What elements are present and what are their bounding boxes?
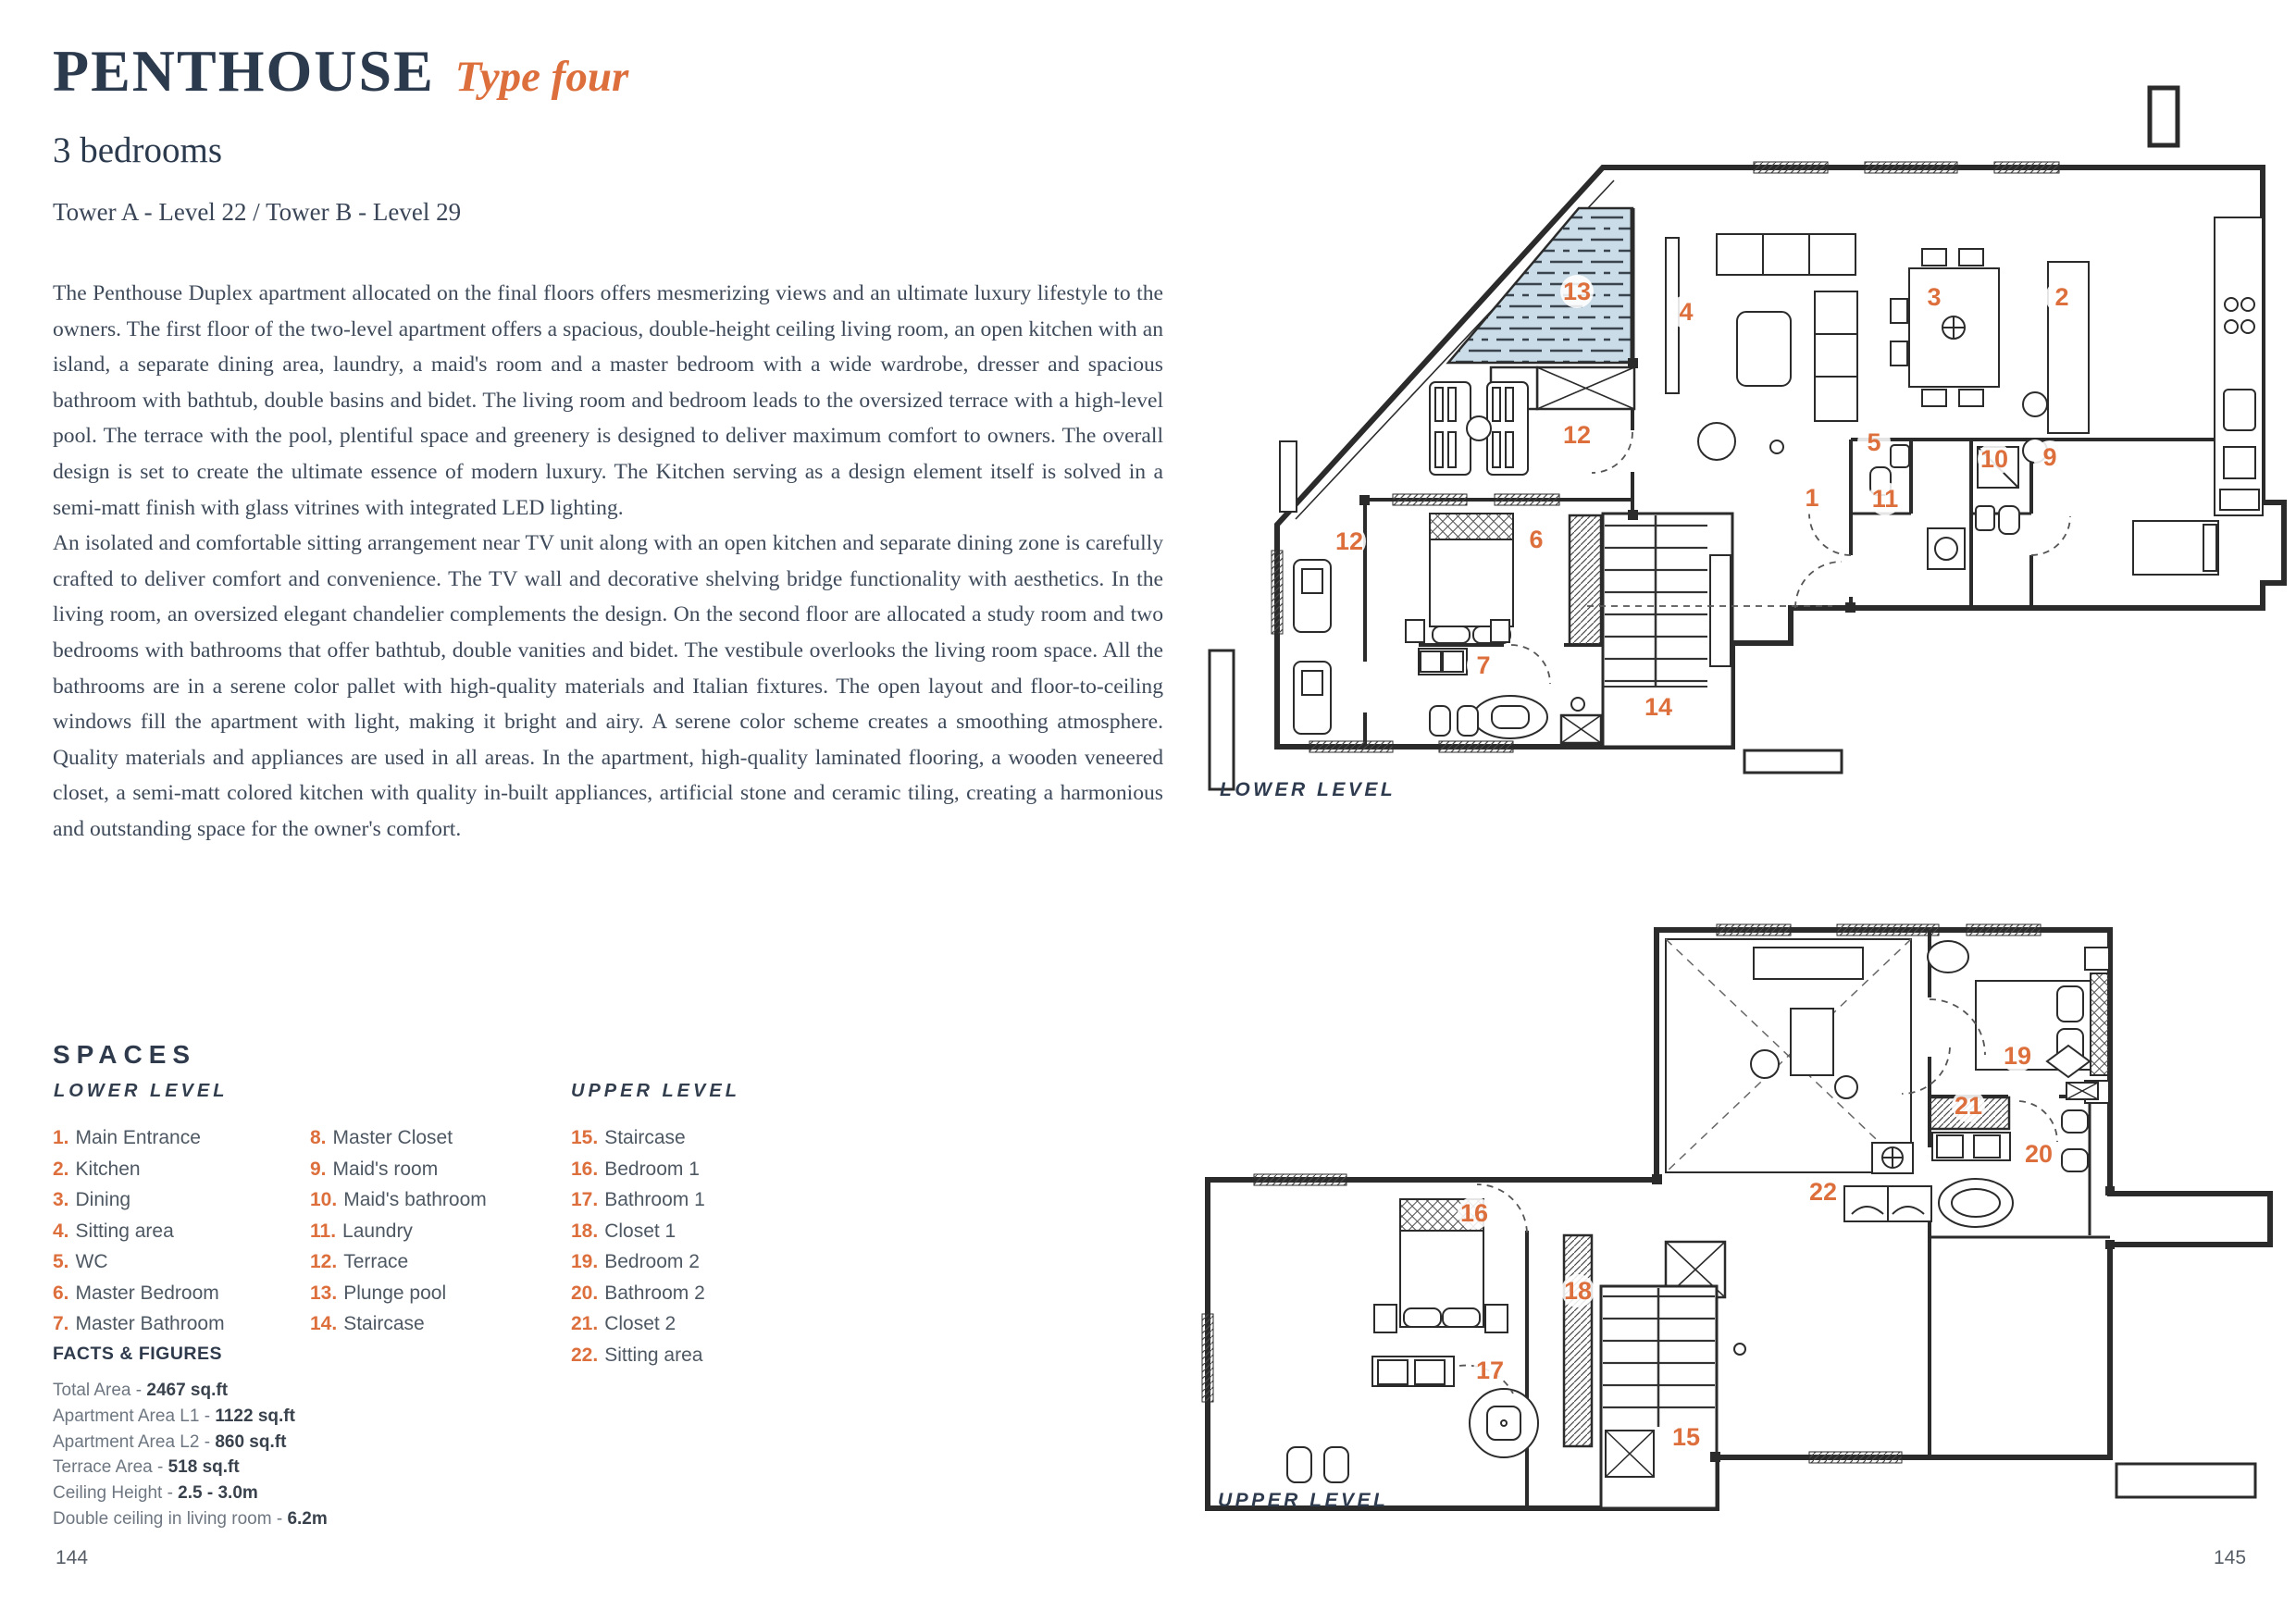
space-list-item: 6.Master Bedroom bbox=[53, 1282, 225, 1305]
room-number-label: 14 bbox=[1644, 693, 1672, 721]
space-list-item: 3.Dining bbox=[53, 1189, 225, 1211]
room-number-label: 22 bbox=[1809, 1178, 1837, 1206]
fact-row: Apartment Area L2 - 860 sq.ft bbox=[53, 1432, 328, 1453]
upper-level-list-heading: UPPER LEVEL bbox=[571, 1081, 740, 1102]
space-list-item: 21.Closet 2 bbox=[571, 1313, 705, 1335]
description-paragraph-1: The Penthouse Duplex apartment allocated… bbox=[53, 276, 1163, 526]
lower-level-list-col2: 8.Master Closet9.Maid's room10.Maid's ba… bbox=[310, 1127, 487, 1335]
space-list-item: 22.Sitting area bbox=[571, 1344, 705, 1367]
room-number-label: 19 bbox=[2004, 1042, 2031, 1070]
room-number-label: 4 bbox=[1679, 298, 1693, 326]
upper-level-list: 15.Staircase16.Bedroom 117.Bathroom 118.… bbox=[571, 1127, 705, 1367]
upper-level-floor-plan: 1921202216181715 bbox=[1198, 916, 2295, 1518]
brochure-page: PENTHOUSE Type four 3 bedrooms Tower A -… bbox=[0, 0, 2296, 1623]
spaces-heading: SPACES bbox=[53, 1040, 196, 1070]
fact-row: Ceiling Height - 2.5 - 3.0m bbox=[53, 1483, 328, 1504]
facts-heading: FACTS & FIGURES bbox=[53, 1344, 222, 1365]
page-title-suffix: Type four bbox=[455, 52, 629, 102]
space-list-item: 2.Kitchen bbox=[53, 1158, 225, 1181]
space-list-item: 20.Bathroom 2 bbox=[571, 1282, 705, 1305]
left-page-number: 144 bbox=[56, 1547, 88, 1569]
room-number-label: 9 bbox=[2042, 443, 2056, 471]
fact-row: Total Area - 2467 sq.ft bbox=[53, 1381, 328, 1401]
room-number-label: 12 bbox=[1563, 421, 1591, 449]
space-list-item: 4.Sitting area bbox=[53, 1220, 225, 1243]
space-list-item: 18.Closet 1 bbox=[571, 1220, 705, 1243]
room-number-label: 6 bbox=[1529, 526, 1543, 553]
space-list-item: 8.Master Closet bbox=[310, 1127, 487, 1149]
space-list-item: 15.Staircase bbox=[571, 1127, 705, 1149]
room-number-label: 17 bbox=[1476, 1357, 1504, 1384]
facts-list: Total Area - 2467 sq.ftApartment Area L1… bbox=[53, 1381, 328, 1530]
lower-level-list-col1: 1.Main Entrance2.Kitchen3.Dining4.Sittin… bbox=[53, 1127, 225, 1335]
room-number-label: 20 bbox=[2025, 1140, 2053, 1168]
room-number-label: 10 bbox=[1980, 445, 2008, 473]
room-number-label: 3 bbox=[1927, 283, 1941, 311]
room-number-label: 2 bbox=[2054, 283, 2068, 311]
space-list-item: 12.Terrace bbox=[310, 1251, 487, 1273]
room-number-label: 12 bbox=[1335, 527, 1363, 555]
space-list-item: 5.WC bbox=[53, 1251, 225, 1273]
lower-plan-caption: LOWER LEVEL bbox=[1220, 779, 1396, 801]
space-list-item: 17.Bathroom 1 bbox=[571, 1189, 705, 1211]
space-list-item: 10.Maid's bathroom bbox=[310, 1189, 487, 1211]
room-number-label: 11 bbox=[1872, 485, 1899, 513]
space-list-item: 9.Maid's room bbox=[310, 1158, 487, 1181]
room-number-label: 1 bbox=[1805, 484, 1818, 512]
tower-level-line: Tower A - Level 22 / Tower B - Level 29 bbox=[53, 198, 461, 227]
fact-row: Double ceiling in living room - 6.2m bbox=[53, 1509, 328, 1530]
bedrooms-subtitle: 3 bedrooms bbox=[53, 130, 222, 171]
right-page-number: 145 bbox=[2214, 1547, 2246, 1569]
space-list-item: 1.Main Entrance bbox=[53, 1127, 225, 1149]
space-list-item: 13.Plunge pool bbox=[310, 1282, 487, 1305]
space-list-item: 14.Staircase bbox=[310, 1313, 487, 1335]
page-title-row: PENTHOUSE Type four bbox=[53, 37, 628, 105]
room-number-label: 13 bbox=[1563, 278, 1591, 305]
room-number-label: 18 bbox=[1564, 1277, 1592, 1305]
lower-level-floor-plan: 13432125111109126714 bbox=[1198, 79, 2295, 819]
space-list-item: 11.Laundry bbox=[310, 1220, 487, 1243]
space-list-item: 19.Bedroom 2 bbox=[571, 1251, 705, 1273]
fact-row: Apartment Area L1 - 1122 sq.ft bbox=[53, 1406, 328, 1427]
space-list-item: 7.Master Bathroom bbox=[53, 1313, 225, 1335]
description-paragraph-2: An isolated and comfortable sitting arra… bbox=[53, 526, 1163, 847]
room-number-label: 16 bbox=[1460, 1199, 1488, 1227]
upper-plan-caption: UPPER LEVEL bbox=[1218, 1490, 1388, 1512]
fact-row: Terrace Area - 518 sq.ft bbox=[53, 1457, 328, 1478]
page-title: PENTHOUSE bbox=[53, 37, 435, 105]
room-number-label: 5 bbox=[1867, 428, 1880, 456]
room-number-label: 15 bbox=[1672, 1423, 1700, 1451]
description-text: The Penthouse Duplex apartment allocated… bbox=[53, 276, 1163, 848]
space-list-item: 16.Bedroom 1 bbox=[571, 1158, 705, 1181]
room-number-label: 21 bbox=[1955, 1092, 1982, 1120]
lower-level-list-heading: LOWER LEVEL bbox=[54, 1081, 228, 1102]
room-number-label: 7 bbox=[1476, 651, 1490, 679]
